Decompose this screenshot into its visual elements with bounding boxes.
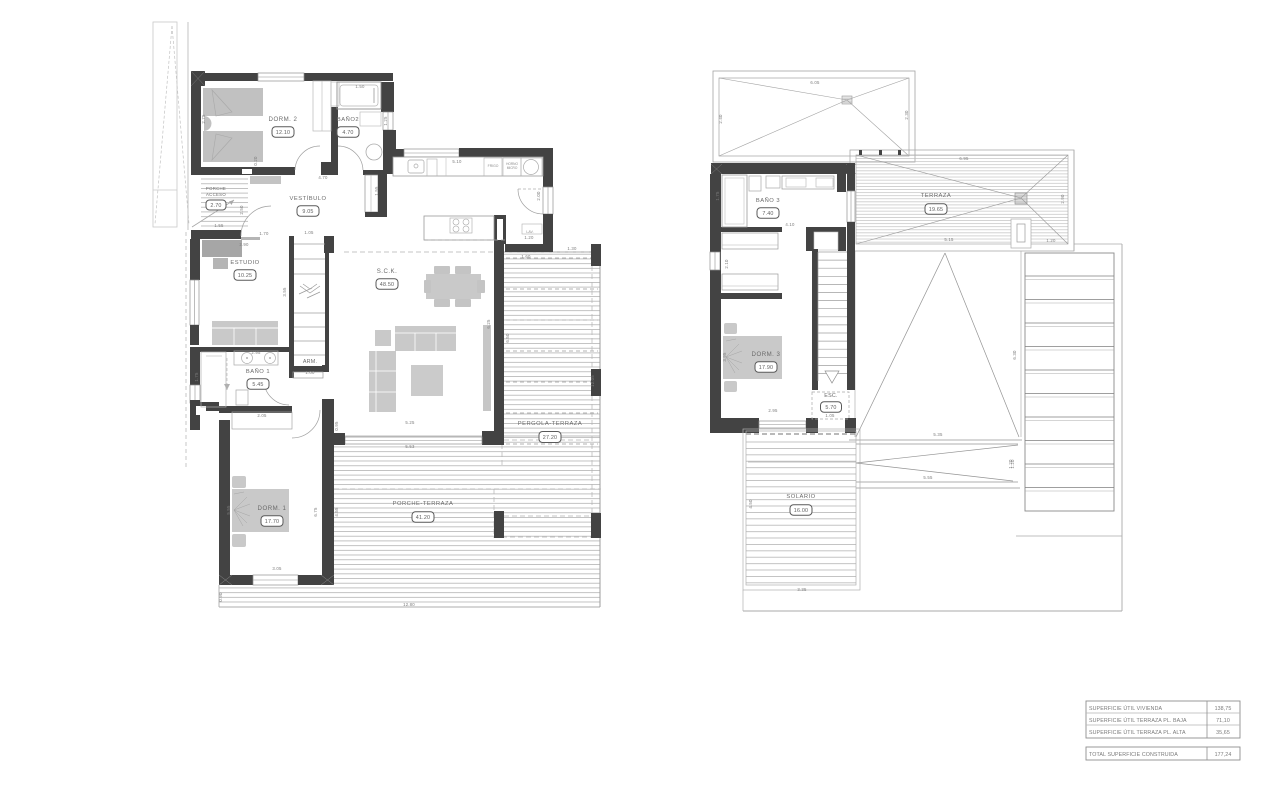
svg-text:1.30: 1.30 xyxy=(567,246,577,251)
svg-text:12.80: 12.80 xyxy=(403,602,415,607)
svg-text:3.05: 3.05 xyxy=(272,566,282,571)
svg-text:DORM. 3: DORM. 3 xyxy=(752,351,781,358)
svg-text:5.15: 5.15 xyxy=(944,237,954,242)
svg-text:1.05: 1.05 xyxy=(304,230,314,235)
svg-text:1.75: 1.75 xyxy=(194,372,199,382)
svg-text:1.25: 1.25 xyxy=(383,116,388,126)
svg-text:41.20: 41.20 xyxy=(416,515,431,521)
svg-text:16.00: 16.00 xyxy=(794,508,809,514)
svg-text:DORM. 1: DORM. 1 xyxy=(258,505,287,512)
svg-text:ESTUDIO: ESTUDIO xyxy=(230,260,259,266)
svg-text:17.90: 17.90 xyxy=(759,365,774,371)
svg-text:2.70: 2.70 xyxy=(210,203,221,209)
svg-text:4.50: 4.50 xyxy=(748,499,753,509)
svg-text:6.25: 6.25 xyxy=(486,319,491,329)
svg-text:138,75: 138,75 xyxy=(1215,706,1232,712)
svg-text:6.30: 6.30 xyxy=(1012,350,1017,360)
svg-text:TERRAZA: TERRAZA xyxy=(921,193,952,199)
svg-text:1.20: 1.20 xyxy=(1046,238,1056,243)
svg-text:1.70: 1.70 xyxy=(259,231,269,236)
svg-text:BAÑO2: BAÑO2 xyxy=(337,116,359,123)
svg-text:ACCESO: ACCESO xyxy=(206,192,226,197)
svg-text:1.55: 1.55 xyxy=(374,186,379,196)
svg-text:5.10: 5.10 xyxy=(452,159,462,164)
svg-text:2.10: 2.10 xyxy=(724,259,729,269)
svg-text:ARM.: ARM. xyxy=(303,359,317,365)
svg-text:2.05: 2.05 xyxy=(257,413,267,418)
svg-text:2.90: 2.90 xyxy=(239,242,249,247)
svg-text:ESC.: ESC. xyxy=(824,393,837,399)
svg-text:VESTÍBULO: VESTÍBULO xyxy=(289,195,326,202)
svg-text:3.35: 3.35 xyxy=(797,587,807,592)
svg-text:SUPERFICIE ÚTIL VIVIENDA: SUPERFICIE ÚTIL VIVIENDA xyxy=(1089,705,1163,712)
svg-text:7.40: 7.40 xyxy=(762,211,773,217)
svg-text:1.55: 1.55 xyxy=(214,223,224,228)
svg-text:1.00: 1.00 xyxy=(305,370,315,375)
svg-text:SOLARIO: SOLARIO xyxy=(786,494,815,500)
svg-text:BAÑO 3: BAÑO 3 xyxy=(756,197,780,204)
svg-text:2.95: 2.95 xyxy=(251,350,261,355)
svg-text:4.70: 4.70 xyxy=(318,175,328,180)
svg-text:3.55: 3.55 xyxy=(282,287,287,297)
svg-text:4.70: 4.70 xyxy=(342,130,353,136)
svg-text:5.35: 5.35 xyxy=(933,432,943,437)
svg-text:5.25: 5.25 xyxy=(405,420,415,425)
svg-text:1.60: 1.60 xyxy=(521,254,531,259)
svg-text:1.20: 1.20 xyxy=(1010,459,1015,469)
svg-text:2.30: 2.30 xyxy=(904,110,909,120)
svg-text:PERGOLA-TERRAZA: PERGOLA-TERRAZA xyxy=(518,421,583,427)
svg-text:71,10: 71,10 xyxy=(1216,718,1230,724)
svg-text:2.00: 2.00 xyxy=(536,191,541,201)
svg-text:2.90: 2.90 xyxy=(1060,194,1065,204)
svg-text:6.50: 6.50 xyxy=(505,333,510,343)
svg-text:MICRO: MICRO xyxy=(507,166,518,170)
svg-text:2.95: 2.95 xyxy=(768,408,778,413)
svg-text:SUPERFICIE ÚTIL TERRAZA PL. BA: SUPERFICIE ÚTIL TERRAZA PL. BAJA xyxy=(1089,717,1187,724)
svg-text:3.95: 3.95 xyxy=(722,352,727,362)
svg-text:12.05: 12.05 xyxy=(590,375,595,387)
svg-text:19.65: 19.65 xyxy=(929,207,944,213)
svg-text:SUPERFICIE ÚTIL TERRAZA PL. AL: SUPERFICIE ÚTIL TERRAZA PL. ALTA xyxy=(1089,729,1186,736)
svg-text:S.C.K.: S.C.K. xyxy=(377,268,398,275)
svg-text:PORCHE: PORCHE xyxy=(206,186,226,191)
svg-text:TOTAL SUPERFICIE CONSTRUIDA: TOTAL SUPERFICIE CONSTRUIDA xyxy=(1089,752,1178,758)
svg-text:5.45: 5.45 xyxy=(252,382,263,388)
svg-text:4.10: 4.10 xyxy=(785,222,795,227)
svg-text:12.10: 12.10 xyxy=(276,130,291,136)
svg-text:177,24: 177,24 xyxy=(1215,752,1232,758)
svg-text:35,65: 35,65 xyxy=(1216,730,1230,736)
svg-text:0.90: 0.90 xyxy=(218,592,223,602)
svg-text:1.20: 1.20 xyxy=(524,235,534,240)
svg-text:9.05: 9.05 xyxy=(302,209,313,215)
svg-text:6.75: 6.75 xyxy=(313,507,318,517)
svg-text:5.70: 5.70 xyxy=(825,405,836,411)
svg-text:48.50: 48.50 xyxy=(380,282,395,288)
svg-text:5.53: 5.53 xyxy=(405,444,415,449)
svg-text:DORM. 2: DORM. 2 xyxy=(269,116,298,123)
svg-text:1.75: 1.75 xyxy=(715,191,720,201)
svg-text:27.20: 27.20 xyxy=(543,435,558,441)
svg-text:2.50: 2.50 xyxy=(239,205,244,215)
svg-text:LAV.: LAV. xyxy=(526,230,533,234)
svg-text:5.55: 5.55 xyxy=(923,475,933,480)
svg-text:PORCHE-TERRAZA: PORCHE-TERRAZA xyxy=(393,501,454,507)
svg-text:0.20: 0.20 xyxy=(253,156,258,166)
svg-text:BAÑO 1: BAÑO 1 xyxy=(246,368,270,375)
svg-text:6.05: 6.05 xyxy=(810,80,820,85)
svg-text:4.55: 4.55 xyxy=(334,507,339,517)
svg-text:1.05: 1.05 xyxy=(825,413,835,418)
svg-text:2.75: 2.75 xyxy=(201,114,206,124)
svg-text:FRIGO: FRIGO xyxy=(488,164,499,168)
svg-text:5.55: 5.55 xyxy=(226,505,231,515)
svg-text:2.40: 2.40 xyxy=(718,114,723,124)
svg-text:6.95: 6.95 xyxy=(959,156,969,161)
svg-text:10.25: 10.25 xyxy=(238,273,253,279)
svg-text:17.70: 17.70 xyxy=(265,519,280,525)
svg-text:1.50: 1.50 xyxy=(355,84,365,89)
svg-text:0.95: 0.95 xyxy=(334,421,339,431)
